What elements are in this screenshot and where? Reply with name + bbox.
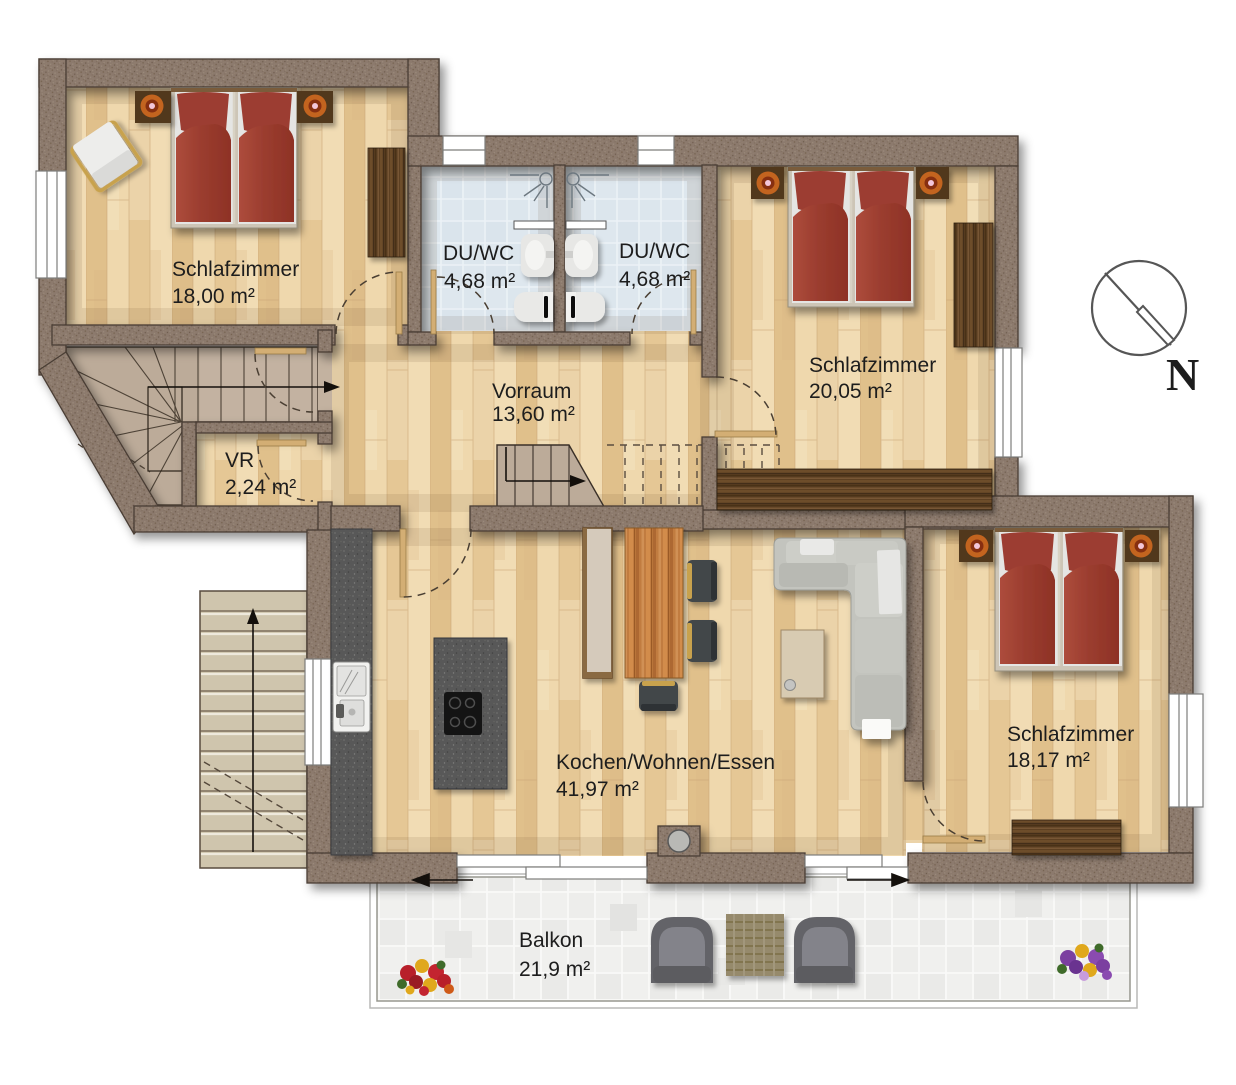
svg-text:VR: VR: [225, 449, 254, 472]
svg-text:18,17 m²: 18,17 m²: [1007, 749, 1090, 772]
svg-text:N: N: [1166, 349, 1199, 400]
svg-text:13,60 m²: 13,60 m²: [492, 403, 575, 426]
svg-text:18,00 m²: 18,00 m²: [172, 285, 255, 308]
svg-text:Schlafzimmer: Schlafzimmer: [1007, 723, 1134, 746]
svg-text:Schlafzimmer: Schlafzimmer: [809, 354, 936, 377]
svg-text:Kochen/Wohnen/Essen: Kochen/Wohnen/Essen: [556, 751, 775, 774]
svg-text:4,68 m²: 4,68 m²: [619, 268, 690, 291]
svg-text:21,9 m²: 21,9 m²: [519, 958, 590, 981]
svg-text:20,05 m²: 20,05 m²: [809, 380, 892, 403]
svg-text:DU/WC: DU/WC: [619, 240, 690, 263]
svg-text:Balkon: Balkon: [519, 929, 583, 952]
svg-text:Vorraum: Vorraum: [492, 380, 571, 403]
svg-text:2,24 m²: 2,24 m²: [225, 476, 296, 499]
svg-text:4,68 m²: 4,68 m²: [444, 270, 515, 293]
svg-text:DU/WC: DU/WC: [443, 242, 514, 265]
svg-text:Schlafzimmer: Schlafzimmer: [172, 258, 299, 281]
svg-text:41,97 m²: 41,97 m²: [556, 778, 639, 801]
